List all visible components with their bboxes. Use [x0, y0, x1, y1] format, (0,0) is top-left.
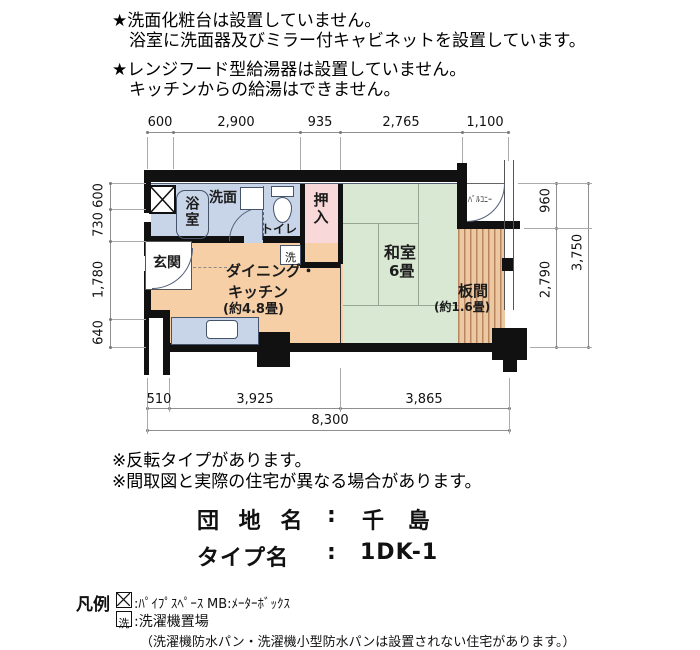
dim-top-4: 2,765 — [369, 115, 433, 130]
dim-bottom-total: 8,300 — [298, 413, 362, 428]
dim-ext — [112, 319, 146, 320]
corridor-opening — [149, 318, 163, 375]
dim-ext — [112, 241, 146, 242]
wall-toilet-bottom — [263, 236, 300, 243]
tatami-line — [378, 223, 379, 305]
dim-top-1: 600 — [128, 115, 192, 130]
legend-title: 凡例 — [76, 590, 110, 615]
dim-top-3: 935 — [288, 115, 352, 130]
washbasin — [240, 187, 264, 210]
dim-bottom-2: 3,925 — [223, 392, 287, 407]
window-opening — [144, 213, 151, 222]
tatami-line — [343, 223, 418, 224]
washer-legend-symbol: 洗 — [119, 617, 130, 630]
dim-ext — [462, 137, 463, 163]
bath-label: 浴室 — [183, 196, 198, 228]
washroom-label: 洗面 — [209, 191, 237, 206]
entrance-dk-dashline — [193, 267, 227, 268]
danchi-name-value: 千 島 — [362, 503, 438, 535]
dk-label-3: (約4.8畳) — [223, 303, 284, 317]
balcony-label: ﾊﾞﾙｺﾆｰ — [468, 196, 492, 205]
closet-label: 押入 — [312, 192, 329, 226]
pipe-space-x-icon — [151, 187, 174, 212]
dim-tick — [146, 131, 149, 134]
balcony-railing — [513, 160, 514, 310]
type-colon: : — [327, 540, 336, 565]
notice-line: 浴室に洗面器及びミラー付キャビネットを設置しています。 — [129, 26, 586, 51]
dim-tick — [299, 131, 302, 134]
floorplan-page: ★洗面化粧台は設置していません。 浴室に洗面器及びミラー付キャビネットを設置して… — [0, 0, 700, 650]
dim-ext — [112, 209, 146, 210]
kitchen-sink — [206, 320, 238, 339]
dim-tick — [461, 131, 464, 134]
dim-left-4: 640 — [92, 301, 107, 365]
wood-floor-label: 板間 — [458, 283, 488, 300]
washer-legend-icon: 洗 — [116, 611, 132, 627]
dim-top-5: 1,100 — [453, 115, 517, 130]
pillar-block — [257, 332, 290, 367]
dim-ext — [518, 183, 592, 184]
legend-washer-text: :洗濯機置場 — [134, 611, 209, 631]
tatami-line — [418, 184, 419, 305]
dim-ext — [112, 183, 146, 184]
legend-note: （洗濯機防水パン・洗濯機小型防水パンは設置されない住宅があります。） — [140, 631, 576, 650]
danchi-colon: : — [327, 503, 336, 528]
dim-tick — [172, 131, 175, 134]
wood-floor-size-label: (約1.6畳) — [434, 301, 490, 314]
dim-line-bottom-upper — [147, 408, 509, 409]
dim-line-bottom-lower — [147, 430, 509, 431]
dim-ext — [300, 137, 301, 170]
dim-ext — [147, 137, 148, 169]
dim-line-top — [147, 132, 508, 133]
toilet-label: トイレ — [261, 223, 297, 236]
dim-line-right-inner — [556, 183, 557, 347]
pipe-space-legend-icon — [116, 592, 132, 608]
dk-label-1: ダイニング・ — [226, 263, 316, 280]
dim-bottom-1: 510 — [127, 392, 191, 407]
dim-line-right-outer — [588, 183, 589, 347]
dim-top-2: 2,900 — [204, 115, 268, 130]
x-icon — [117, 593, 130, 606]
type-name-label: タイプ名 — [197, 540, 289, 572]
dim-tick — [507, 131, 510, 134]
dim-ext — [112, 347, 146, 348]
dim-ext — [509, 378, 510, 434]
legend-meter-box-text: MB:ﾒｰﾀｰﾎﾞｯｸｽ — [207, 593, 290, 612]
railing-post — [502, 258, 513, 271]
type-name-value: 1DK-1 — [360, 540, 438, 565]
dk-label-2: キッチン — [228, 284, 288, 301]
wall-dk-washitsu — [338, 184, 343, 264]
entrance-label: 玄関 — [153, 256, 181, 271]
pipe-space-box — [149, 185, 176, 214]
dim-right-1: 960 — [539, 169, 554, 233]
dim-ext — [530, 347, 592, 348]
room-top-line — [151, 183, 504, 184]
wall-balcony-side — [457, 163, 467, 229]
dim-ext — [340, 137, 341, 170]
wall-balcony-bottom — [457, 221, 520, 229]
notice-line: キッチンからの給湯はできません。 — [129, 75, 401, 100]
japanese-room-label: 和室 — [384, 244, 416, 262]
pillar-block — [503, 352, 517, 372]
danchi-name-label: 団 地 名 — [197, 503, 308, 535]
dim-ext — [508, 137, 509, 161]
dim-right-2: 2,790 — [539, 248, 554, 312]
wall-top — [145, 170, 467, 182]
dim-ext — [173, 137, 174, 169]
toilet-tank — [271, 186, 294, 197]
balcony-railing — [504, 160, 505, 310]
dim-tick — [339, 131, 342, 134]
remark-line: ※間取図と実際の住宅が異なる場合があります。 — [112, 467, 482, 492]
dim-bottom-3: 3,865 — [392, 392, 456, 407]
dk-washitsu-line — [340, 264, 341, 343]
dim-ext — [340, 368, 341, 412]
legend-pipe-space-text: :ﾊﾟｲﾌﾟｽﾍﾟｰｽ — [134, 593, 203, 612]
dim-right-3: 3,750 — [571, 221, 586, 285]
japanese-room-size-label: 6畳 — [389, 263, 414, 280]
